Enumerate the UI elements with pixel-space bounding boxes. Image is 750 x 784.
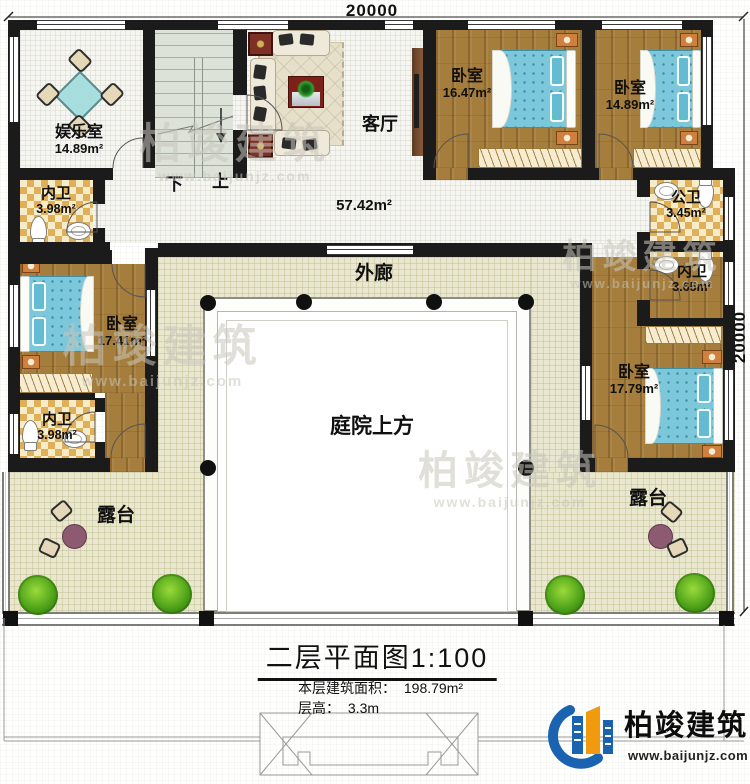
window — [468, 20, 555, 30]
bedroom-ne1-label: 卧室 16.47m² — [443, 68, 491, 100]
wall-living-east — [423, 30, 436, 180]
column — [200, 295, 216, 311]
wardrobe — [478, 148, 582, 168]
sofa-pillow — [253, 106, 267, 122]
window — [581, 366, 591, 420]
drawing-scale: 1:100 — [411, 643, 489, 673]
column — [518, 460, 534, 476]
veranda-left-floor — [158, 257, 203, 472]
tv — [414, 74, 419, 128]
room-area: 3.65m² — [672, 281, 712, 295]
display-cabinet — [248, 134, 273, 158]
room-name: 公卫 — [666, 190, 706, 207]
brand-logo-icon — [534, 696, 624, 774]
window — [37, 20, 125, 30]
pillow — [697, 409, 711, 438]
dimension-right: 20000 — [730, 307, 750, 367]
sofa-pillow — [302, 138, 318, 151]
window — [9, 414, 19, 454]
column — [518, 294, 534, 310]
nightstand — [680, 131, 698, 145]
terrace-table — [62, 524, 87, 549]
courtyard-label: 庭院上方 — [330, 410, 414, 440]
terrace-left-door-threshold — [110, 458, 148, 472]
nightstand — [702, 445, 722, 458]
terrace-right-door-threshold — [595, 458, 628, 472]
bedroom-ne2-door-threshold — [599, 168, 633, 180]
column — [296, 294, 312, 310]
wall-west-wing-south — [148, 458, 158, 472]
bedroom-ne2-label: 卧室 14.89m² — [606, 80, 654, 112]
railing-post — [518, 611, 533, 626]
window — [724, 262, 734, 305]
terrace-left-label: 露台 — [97, 500, 135, 527]
wall-public-bath-west — [637, 180, 650, 197]
window — [9, 285, 19, 347]
wardrobe — [645, 326, 722, 344]
window — [218, 20, 288, 30]
bed-sheet — [80, 276, 94, 352]
wardrobe — [633, 148, 701, 168]
room-name: 卧室 — [606, 80, 654, 98]
potted-plant — [152, 574, 192, 614]
terrace-right-label: 露台 — [629, 483, 667, 510]
potted-plant — [18, 575, 58, 615]
sofa-pillow — [281, 137, 296, 150]
display-cabinet — [248, 32, 273, 56]
veranda-right-floor — [531, 257, 580, 472]
window — [385, 20, 413, 30]
potted-plant — [545, 575, 585, 615]
room-area: 14.89m² — [606, 98, 654, 112]
wall-stair-left — [143, 30, 155, 168]
terrace-left-railing — [2, 472, 10, 624]
wall-bedroom-west-north — [20, 250, 112, 264]
sofa-pillow — [253, 85, 266, 100]
living-room-label: 客厅 — [362, 110, 398, 136]
window — [724, 197, 734, 240]
wall-east-wing-west — [580, 248, 592, 472]
wall-bath-bl-east — [95, 442, 105, 458]
sofa-pillow — [278, 33, 293, 46]
room-area: 17.79m² — [610, 382, 658, 396]
brand-website: www.baijunjz.com — [628, 748, 748, 763]
railing-post — [199, 611, 214, 626]
bedroom-ne1-door-threshold — [434, 168, 468, 180]
bedroom-west-nook-floor — [105, 393, 145, 458]
room-area: 16.47m² — [443, 86, 491, 100]
stair-stringer — [194, 58, 195, 178]
wardrobe — [13, 373, 93, 393]
wall-east-wing-south — [580, 458, 595, 472]
room-name: 内卫 — [37, 412, 77, 429]
pillow — [550, 56, 564, 86]
stairs-down-label: 下 — [166, 170, 183, 195]
south-railing — [2, 612, 735, 626]
room-area: 3.98m² — [37, 429, 77, 443]
table-plant — [297, 80, 315, 98]
wall-bath-bl-north — [8, 393, 95, 400]
nightstand — [702, 350, 722, 364]
sofa-pillow — [253, 64, 267, 80]
wall-east-wing-south — [628, 458, 735, 472]
wall-stair-right — [233, 30, 247, 95]
room-name: 内卫 — [36, 186, 76, 203]
bath-bottom-left-label: 内卫 3.98m² — [37, 412, 77, 442]
nightstand — [556, 131, 578, 145]
hall-floor-patch — [592, 243, 637, 257]
drawing-title-text: 二层平面图 — [266, 643, 411, 673]
drawing-title: 二层平面图1:100 — [258, 636, 497, 681]
floor-height-line: 层高： 3.3m — [298, 698, 379, 718]
floor-area-label: 本层建筑面积： — [298, 680, 396, 696]
railing-post — [719, 611, 734, 626]
wall-bath-right-south — [637, 318, 735, 326]
nightstand — [680, 33, 698, 47]
column — [426, 294, 442, 310]
wall-bedroom-divider — [582, 30, 595, 170]
room-name: 娱乐室 — [55, 124, 103, 142]
wall-stair-right — [233, 130, 247, 178]
bath-top-left-label: 内卫 3.98m² — [36, 186, 76, 216]
wall-bedrooms-south — [633, 168, 735, 180]
dimension-top: 20000 — [346, 1, 398, 21]
veranda-label: 外廊 — [355, 258, 393, 285]
pillow — [697, 374, 711, 403]
stairs-up-label: 上 — [212, 167, 229, 192]
room-area: 14.89m² — [55, 142, 103, 156]
room-name: 卧室 — [610, 364, 658, 382]
floor-area-value: 198.79m² — [404, 680, 463, 696]
floor-area-line: 本层建筑面积： 198.79m² — [298, 678, 463, 698]
room-name: 卧室 — [98, 316, 146, 334]
wall-bath-right-west — [637, 300, 650, 318]
entertainment-room-label: 娱乐室 14.89m² — [55, 124, 103, 156]
room-area: 3.45m² — [666, 207, 706, 221]
headboard — [692, 50, 701, 128]
window — [327, 245, 413, 255]
wall-west-wing-east — [145, 248, 158, 472]
floor-height-value: 3.3m — [348, 700, 379, 716]
wall-bedrooms-south — [468, 168, 599, 180]
headboard — [20, 276, 30, 352]
nightstand — [556, 33, 578, 47]
pillow — [32, 282, 46, 311]
wall-west-wing-south — [8, 458, 110, 472]
toilet — [30, 216, 47, 242]
terrace-right-railing — [726, 472, 734, 624]
wall-bedrooms-south — [423, 168, 434, 180]
wall-entertainment-south — [8, 168, 113, 180]
floor-height-label: 层高： — [298, 700, 340, 716]
sofa-pillow — [299, 33, 314, 45]
room-name: 卧室 — [443, 68, 491, 86]
pillow — [677, 56, 690, 86]
wall-bath-divider — [637, 241, 735, 252]
room-area: 3.98m² — [36, 203, 76, 217]
living-room-area: 57.42m² — [336, 197, 392, 214]
stair-stringer — [202, 58, 203, 178]
window — [724, 370, 734, 440]
window — [702, 37, 712, 125]
room-name: 内卫 — [672, 264, 712, 281]
wall-bath-right-west — [637, 252, 650, 269]
bedroom-west-label: 卧室 17.41m² — [98, 316, 146, 348]
headboard — [713, 368, 723, 444]
potted-plant — [675, 573, 715, 613]
public-bath-label: 公卫 3.45m² — [666, 190, 706, 220]
courtyard-inner-line-2 — [226, 320, 508, 612]
window — [602, 20, 682, 30]
bedroom-east-label: 卧室 17.79m² — [610, 364, 658, 396]
wall-bath-bl-east — [95, 398, 105, 412]
bath-right-label: 内卫 3.65m² — [672, 264, 712, 294]
column — [200, 460, 216, 476]
floor-plan-sheet: 20000 20000 娱乐室 14.89m² 内卫 3.98m² 客厅 57.… — [0, 0, 750, 784]
nightstand — [22, 355, 40, 369]
wall-bath-tl — [93, 180, 105, 204]
railing-post — [3, 611, 18, 626]
pillow — [32, 317, 46, 346]
brand-name: 柏竣建筑 — [624, 702, 748, 744]
window — [9, 37, 19, 122]
sink — [66, 222, 91, 240]
headboard — [566, 50, 576, 128]
room-area: 17.41m² — [98, 334, 146, 348]
pillow — [550, 92, 564, 122]
pillow — [677, 92, 690, 122]
wall-bath-tl — [93, 228, 105, 242]
window — [146, 290, 156, 356]
